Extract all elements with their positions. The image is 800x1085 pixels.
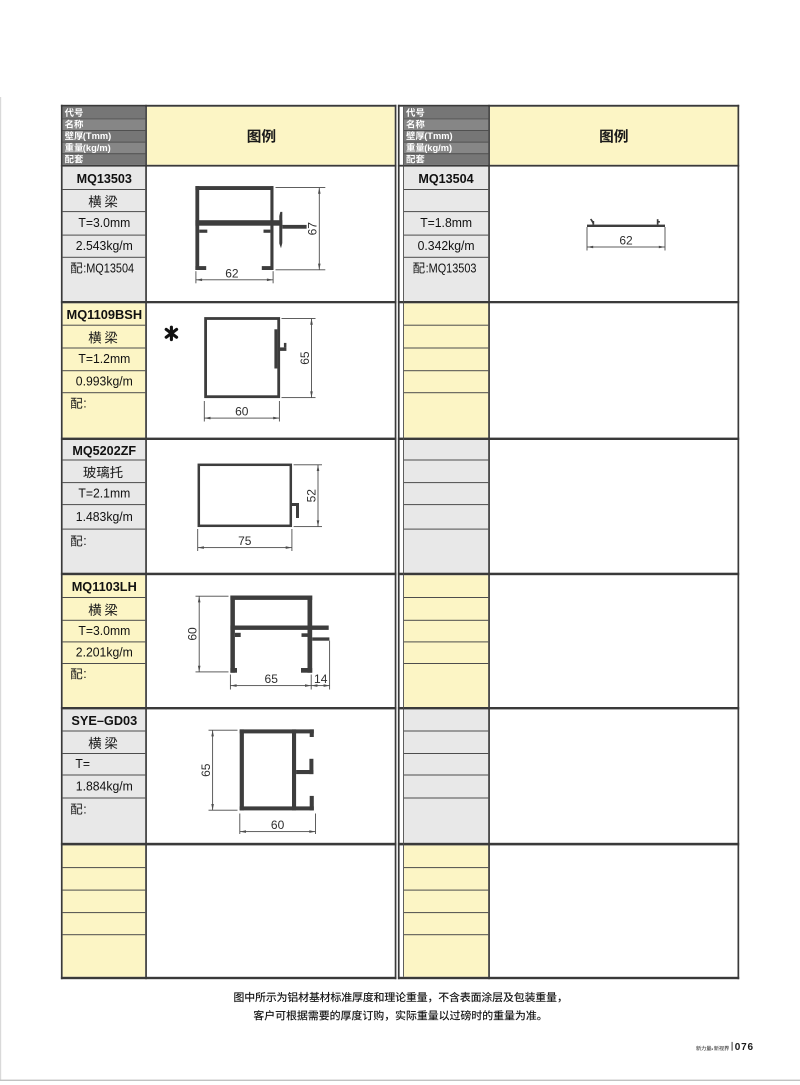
svg-text:60: 60 — [235, 405, 249, 419]
svg-text::: : — [83, 666, 86, 681]
svg-text:65: 65 — [298, 351, 312, 365]
svg-text:0.342kg/m: 0.342kg/m — [418, 238, 475, 253]
svg-text:(Tmm): (Tmm) — [424, 131, 452, 141]
svg-text:T=2.1mm: T=2.1mm — [78, 486, 130, 501]
svg-text:2.543kg/m: 2.543kg/m — [76, 238, 133, 253]
svg-text:60: 60 — [186, 627, 200, 641]
svg-text:(kg/m): (kg/m) — [83, 143, 111, 153]
svg-text:1.884kg/m: 1.884kg/m — [76, 778, 133, 793]
svg-text::MQ13503: :MQ13503 — [426, 260, 477, 275]
svg-text:67: 67 — [306, 222, 320, 236]
svg-text:T=3.0mm: T=3.0mm — [78, 623, 130, 638]
svg-text::: : — [83, 801, 86, 816]
svg-text:14: 14 — [314, 672, 328, 686]
svg-text:65: 65 — [199, 763, 213, 777]
svg-text:(Tmm): (Tmm) — [83, 131, 111, 141]
svg-text:60: 60 — [271, 818, 285, 832]
svg-text::: : — [83, 396, 86, 411]
svg-text:T=: T= — [75, 756, 90, 771]
svg-text:(kg/m): (kg/m) — [424, 143, 452, 153]
svg-text:MQ13503: MQ13503 — [77, 171, 132, 186]
svg-text:MQ1109BSH: MQ1109BSH — [67, 307, 143, 322]
svg-text:75: 75 — [238, 534, 252, 548]
svg-text:2.201kg/m: 2.201kg/m — [76, 645, 133, 660]
svg-text:MQ13504: MQ13504 — [418, 171, 474, 186]
svg-text:62: 62 — [225, 266, 239, 280]
svg-text:T=1.2mm: T=1.2mm — [78, 351, 130, 366]
svg-text:T=1.8mm: T=1.8mm — [420, 215, 472, 230]
svg-text:076: 076 — [735, 1042, 754, 1053]
svg-text:65: 65 — [265, 672, 279, 686]
svg-text:0.993kg/m: 0.993kg/m — [76, 374, 133, 389]
svg-text:MQ5202ZF: MQ5202ZF — [72, 443, 136, 458]
svg-text:MQ1103LH: MQ1103LH — [72, 579, 137, 594]
svg-text:T=3.0mm: T=3.0mm — [78, 215, 130, 230]
svg-text:62: 62 — [619, 234, 633, 248]
svg-text::MQ13504: :MQ13504 — [83, 260, 134, 275]
svg-text:1.483kg/m: 1.483kg/m — [76, 509, 133, 524]
svg-text:SYE–GD03: SYE–GD03 — [71, 713, 137, 728]
svg-text:52: 52 — [304, 489, 318, 503]
svg-text::: : — [83, 533, 86, 548]
